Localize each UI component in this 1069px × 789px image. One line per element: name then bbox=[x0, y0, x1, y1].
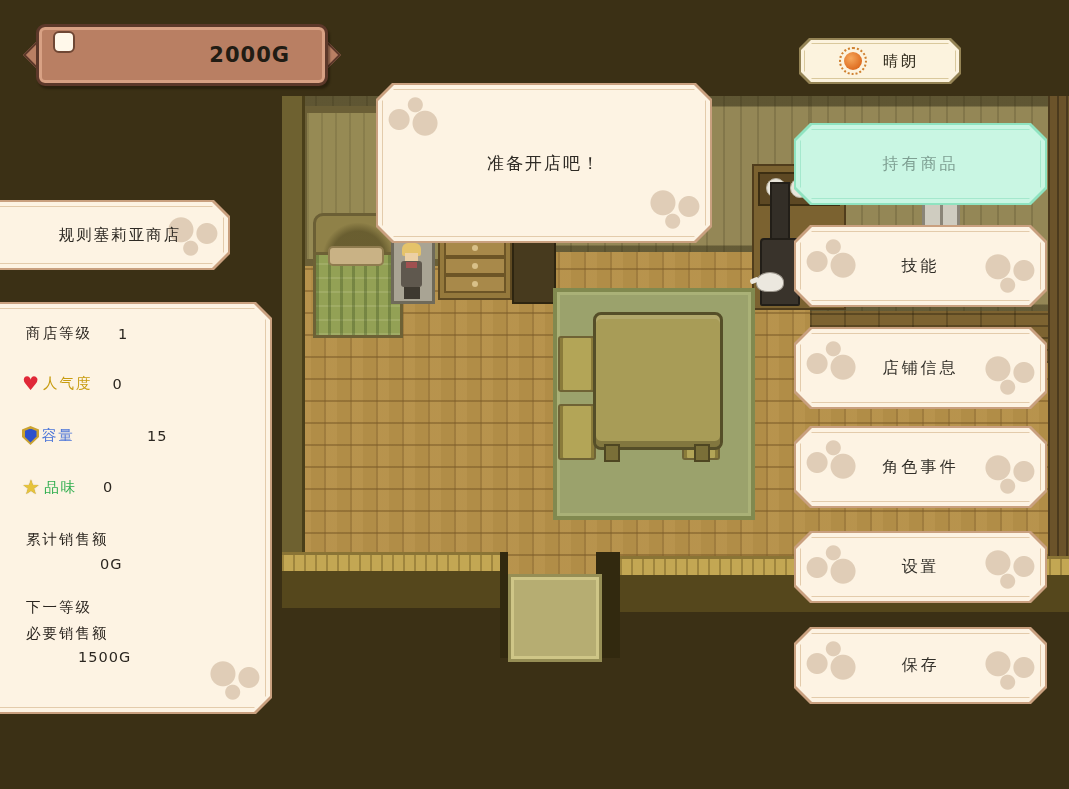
capacity-value: 15 bbox=[147, 428, 167, 444]
banner-plate bbox=[53, 31, 75, 53]
stat-shop-level: 商店等级 1 bbox=[26, 324, 128, 343]
stat-required-sales-value: 1500G bbox=[78, 649, 131, 665]
money-amount: 2000G bbox=[209, 43, 290, 67]
menu-button-shop-info[interactable]: 店铺信息 bbox=[794, 327, 1047, 409]
taste-value: 0 bbox=[103, 479, 113, 495]
room-left-edge bbox=[282, 96, 305, 586]
dialog-box: 准备开店吧！ bbox=[376, 83, 712, 243]
shop-name-panel: 规则塞莉亚商店 bbox=[0, 200, 230, 270]
stat-total-sales-label: 累计销售额 bbox=[26, 530, 109, 549]
sun-icon bbox=[839, 47, 867, 75]
menu-button-held-items[interactable]: 持有商品 bbox=[794, 123, 1047, 205]
money-banner: 2000G bbox=[36, 24, 328, 86]
shield-icon bbox=[22, 426, 39, 445]
stat-total-sales-value: 0G bbox=[100, 556, 122, 572]
stat-taste: ★ 品味 0 bbox=[22, 477, 113, 497]
stat-required-sales-label: 必要销售额 bbox=[26, 624, 109, 643]
table-leg bbox=[694, 444, 710, 462]
stat-popularity: ♥ 人气度 0 bbox=[22, 374, 123, 393]
drawer-cabinet bbox=[438, 234, 512, 300]
teapot bbox=[756, 272, 784, 292]
bottom-wall-left-top bbox=[282, 552, 502, 571]
chair bbox=[558, 404, 596, 460]
menu-button-character-events[interactable]: 角色事件 bbox=[794, 426, 1047, 508]
chair bbox=[558, 336, 596, 392]
doorway-side bbox=[500, 552, 508, 658]
right-wall-edge bbox=[1048, 96, 1069, 596]
menu-button-skills[interactable]: 技能 bbox=[794, 225, 1047, 307]
shop-stats-panel: 商店等级 1 ♥ 人气度 0 容量 15 ★ 品味 0 累计销售额 0G 下一等… bbox=[0, 302, 272, 714]
menu-button-save[interactable]: 保存 bbox=[794, 627, 1047, 704]
entrance-mat bbox=[508, 574, 602, 662]
stat-capacity: 容量 15 bbox=[22, 426, 167, 445]
dialog-message: 准备开店吧！ bbox=[376, 83, 712, 243]
player-character bbox=[398, 240, 426, 304]
star-icon: ★ bbox=[22, 477, 42, 497]
bed-pillow bbox=[328, 246, 384, 266]
popularity-value: 0 bbox=[113, 376, 123, 392]
heart-icon: ♥ bbox=[22, 374, 41, 393]
shop-level-value: 1 bbox=[118, 326, 128, 342]
shop-name: 规则塞莉亚商店 bbox=[0, 200, 230, 270]
weather-label: 晴朗 bbox=[883, 52, 919, 71]
table-leg bbox=[604, 444, 620, 462]
weather-indicator: 晴朗 bbox=[799, 38, 961, 84]
menu-button-settings[interactable]: 设置 bbox=[794, 531, 1047, 603]
dining-table bbox=[593, 312, 723, 450]
stat-next-level-label: 下一等级 bbox=[26, 598, 92, 617]
stove-pipe bbox=[770, 182, 790, 244]
